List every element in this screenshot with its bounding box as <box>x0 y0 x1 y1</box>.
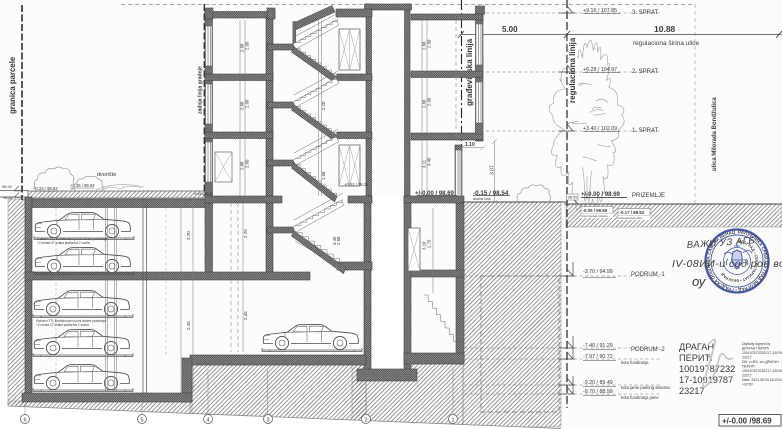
svg-text:kota fundiranja: kota fundiranja <box>621 360 649 365</box>
svg-text:2: 2 <box>364 417 367 423</box>
svg-text:3. SPRAT: 3. SPRAT <box>632 10 659 16</box>
svg-text:ПЕРИЋ: ПЕРИЋ <box>679 353 712 363</box>
svg-text:PODRUM -1: PODRUM -1 <box>631 272 665 278</box>
svg-text:izlazna kota: izlazna kota <box>473 197 491 201</box>
svg-text:3: 3 <box>266 417 269 423</box>
svg-text:Date: 2021.09.03 16:23:08: Date: 2021.09.03 16:23:08 <box>742 378 782 382</box>
svg-text:5.00: 5.00 <box>502 25 518 34</box>
svg-text:regulaciona linija: regulaciona linija <box>568 37 577 103</box>
svg-text:+/-0.00 / 98.69: +/-0.00 / 98.69 <box>415 191 455 197</box>
svg-text:6: 6 <box>23 417 26 423</box>
svg-text:2.60: 2.60 <box>427 39 432 48</box>
svg-text:kota kolovoza ulice: kota kolovoza ulice <box>619 216 643 220</box>
svg-text:-0.17 / 98.52: -0.17 / 98.52 <box>620 210 645 215</box>
svg-text:100197872232217-10019787: 100197872232217-10019787 <box>742 351 782 355</box>
svg-text:-7.97 / 90.72: -7.97 / 90.72 <box>583 354 613 360</box>
svg-text:3.07: 3.07 <box>490 165 496 175</box>
svg-text:1. SPRAT: 1. SPRAT <box>632 128 659 134</box>
svg-text:+9.16 / 107.85: +9.16 / 107.85 <box>583 8 617 14</box>
svg-text:23217: 23217 <box>742 374 752 378</box>
svg-text:+2 mesta 07 svaka platforma 2: +2 mesta 07 svaka platforma 2 vozila <box>36 323 89 327</box>
svg-text:ДРАГАН ПЕРИЋ: ДРАГАН ПЕРИЋ <box>742 347 769 351</box>
svg-text:100197872232217-10019787: 100197872232217-10019787 <box>742 369 782 373</box>
svg-text:3.40: 3.40 <box>427 157 432 166</box>
svg-text:оу: оу <box>692 274 707 289</box>
svg-text:granica parcele: granica parcele <box>8 56 17 114</box>
svg-text:98.59: 98.59 <box>568 195 579 200</box>
svg-text:-9.20 / 89.49: -9.20 / 89.49 <box>583 380 613 386</box>
svg-text:5: 5 <box>140 417 143 423</box>
svg-text:+0.23 / 98.92: +0.23 / 98.92 <box>33 186 58 191</box>
svg-text:4: 4 <box>206 417 209 423</box>
svg-text:2.45: 2.45 <box>243 311 248 320</box>
svg-text:+0.69 / 99.38: +0.69 / 99.38 <box>193 192 213 196</box>
svg-text:23217: 23217 <box>742 356 752 360</box>
svg-text:1.10: 1.10 <box>465 142 475 148</box>
svg-text:regulaciona širina ulice: regulaciona širina ulice <box>633 40 700 47</box>
svg-text:2.76: 2.76 <box>427 239 432 248</box>
svg-text:kota nivelete trotoara: kota nivelete trotoara <box>582 214 609 218</box>
svg-text:1.68: 1.68 <box>321 171 326 180</box>
svg-text:-0.09 / 98.60: -0.09 / 98.60 <box>583 208 608 213</box>
svg-text:2.60: 2.60 <box>245 41 250 50</box>
svg-text:kota fundiranja jame: kota fundiranja jame <box>621 395 659 400</box>
svg-text:+3.40 / 102.09: +3.40 / 102.09 <box>583 126 617 132</box>
svg-text:Digitally signed by: Digitally signed by <box>742 342 770 346</box>
svg-text:1: 1 <box>451 417 454 423</box>
svg-text:kota jame parking sistema: kota jame parking sistema <box>621 385 670 390</box>
svg-text:-7.40 / 91.29: -7.40 / 91.29 <box>583 343 613 349</box>
svg-text:PODRUM -2: PODRUM -2 <box>631 347 665 353</box>
svg-text:DN: c=RS, cn=ДРАГАН: DN: c=RS, cn=ДРАГАН <box>742 360 779 364</box>
svg-text:10.88: 10.88 <box>654 24 676 34</box>
svg-text:zadnja linija gradnje: zadnja linija gradnje <box>198 66 204 114</box>
svg-text:23217: 23217 <box>679 386 705 396</box>
svg-text:ПЕРИЋ: ПЕРИЋ <box>742 365 755 369</box>
svg-text:2.60: 2.60 <box>245 159 250 168</box>
svg-text:dvorište: dvorište <box>97 172 116 178</box>
svg-text:2.88: 2.88 <box>336 236 341 245</box>
svg-text:-0.15 / 98.54: -0.15 / 98.54 <box>473 190 509 197</box>
svg-text:+/-0.00 /98.69: +/-0.00 /98.69 <box>722 417 772 426</box>
svg-text:2.60: 2.60 <box>245 99 250 108</box>
svg-text:-9.70 / 88.99: -9.70 / 88.99 <box>583 389 613 395</box>
svg-text:-3.70 / 94.99: -3.70 / 94.99 <box>583 269 613 275</box>
svg-text:+0.52 / 95.21: +0.52 / 95.21 <box>344 182 369 187</box>
svg-text:2.60: 2.60 <box>427 97 432 106</box>
svg-text:2.20: 2.20 <box>321 101 326 110</box>
svg-text:2. SPRAT: 2. SPRAT <box>632 69 659 75</box>
svg-text:98.82: 98.82 <box>3 195 14 200</box>
svg-text:PRIZEMLJE: PRIZEMLJE <box>632 193 665 199</box>
svg-text:98.92: 98.92 <box>2 184 13 189</box>
svg-text:+02'00': +02'00' <box>742 383 753 387</box>
svg-text:+6.28 / 104.97: +6.28 / 104.97 <box>583 67 617 73</box>
svg-text:2.70: 2.70 <box>243 229 248 238</box>
svg-text:IV-08ИИ-и сод рои вои: IV-08ИИ-и сод рои вои <box>672 258 782 270</box>
svg-text:2.45: 2.45 <box>186 321 191 330</box>
svg-text:ulica Milorada Bondžulica: ulica Milorada Bondžulica <box>712 97 718 171</box>
svg-text:2.70: 2.70 <box>186 231 191 240</box>
svg-text:+2 mesta 07 svaka platforma 2: +2 mesta 07 svaka platforma 2 vozila <box>37 241 90 245</box>
